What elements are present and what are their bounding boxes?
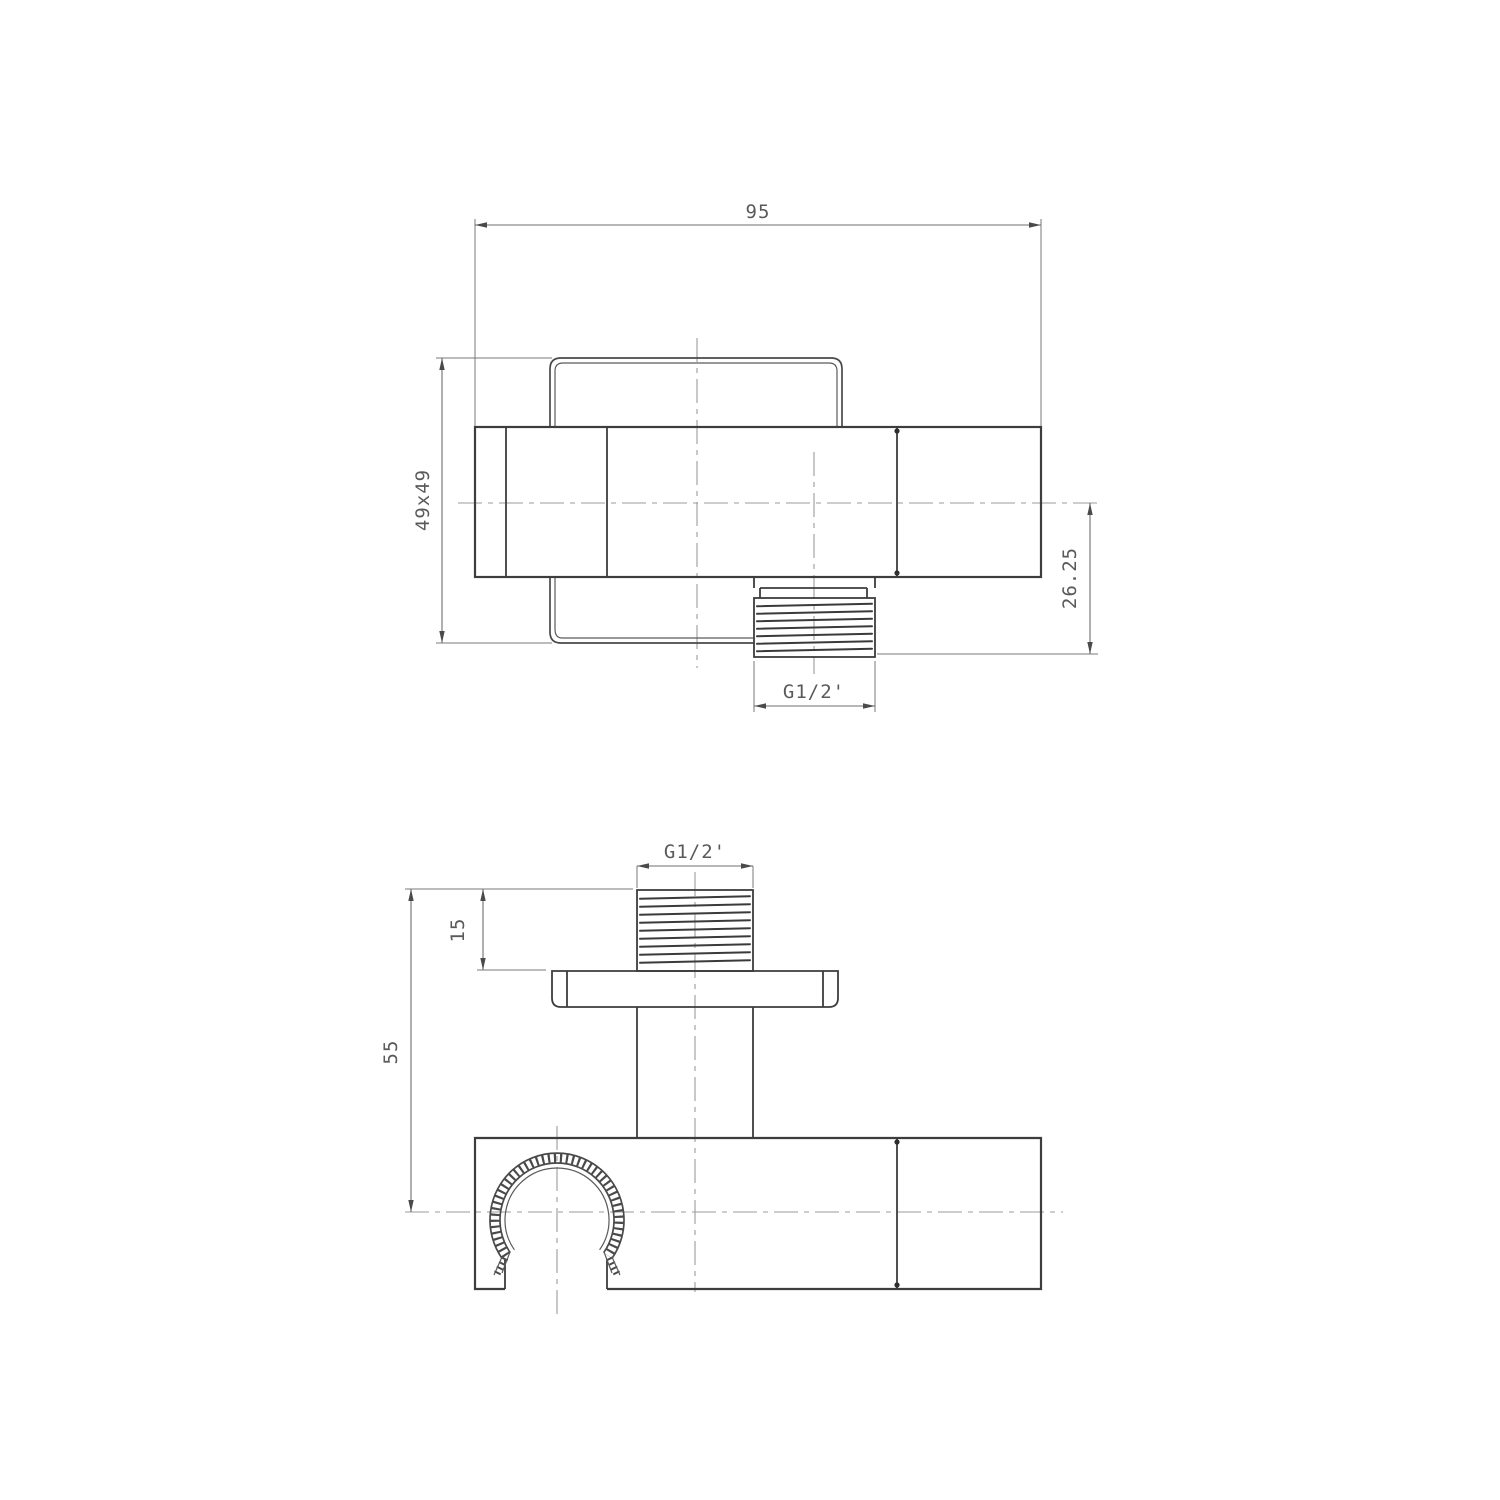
clip-bottom-outer-line — [550, 577, 754, 643]
dim-arrow — [480, 958, 485, 970]
dimension-55: 55 — [380, 889, 414, 1212]
divider-end-dot — [894, 1282, 899, 1287]
thread-ridges — [757, 604, 872, 652]
bottom-view-centerlines — [405, 872, 1063, 1320]
thread-ridges — [640, 896, 750, 963]
dim-arrow — [1087, 503, 1092, 515]
body-rectangle — [475, 427, 1041, 577]
dim-arrow — [754, 703, 766, 708]
clip-top-inner-line — [555, 363, 837, 427]
dim-arrow — [1029, 222, 1041, 227]
clip-bottom-inner-line — [555, 577, 754, 638]
clip-top-outer-line — [550, 358, 842, 427]
technical-drawing-canvas: 95 49x49 26.25 G1/2' — [0, 0, 1500, 1500]
dim-26-25-label: 26.25 — [1059, 547, 1081, 609]
dim-arrow — [863, 703, 875, 708]
dim-g12-side-label: G1/2' — [664, 841, 726, 863]
top-view: 95 49x49 26.25 G1/2' — [412, 201, 1098, 712]
dimension-49x49: 49x49 — [412, 358, 552, 643]
top-view-centerlines — [458, 338, 1098, 674]
dim-15-label: 15 — [447, 918, 469, 943]
dim-95-label: 95 — [746, 201, 771, 223]
divider-end-dot — [894, 1139, 899, 1144]
dim-arrow — [741, 863, 753, 868]
dimension-15: 15 — [405, 889, 633, 970]
dim-49x49-label: 49x49 — [412, 469, 434, 531]
drawing-svg: 95 49x49 26.25 G1/2' — [0, 0, 1500, 1500]
bottom-view: G1/2' 15 55 — [380, 841, 1063, 1320]
divider-end-dot — [894, 428, 899, 433]
dim-arrow — [637, 863, 649, 868]
dimension-95: 95 — [475, 201, 1041, 426]
dim-arrow — [480, 889, 485, 901]
dim-arrow — [408, 1200, 413, 1212]
divider-end-dot — [894, 570, 899, 575]
dim-arrow — [1087, 642, 1092, 654]
dim-55-label: 55 — [380, 1040, 402, 1065]
elbow-body-front — [475, 427, 1041, 577]
dim-g12-front-label: G1/2' — [783, 681, 845, 703]
dim-arrow — [475, 222, 487, 227]
dim-arrow — [439, 358, 444, 370]
dim-arrow — [439, 631, 444, 643]
spring-clip-wire — [550, 358, 842, 643]
dim-arrow — [408, 889, 413, 901]
dimension-26-25: 26.25 — [877, 503, 1098, 654]
